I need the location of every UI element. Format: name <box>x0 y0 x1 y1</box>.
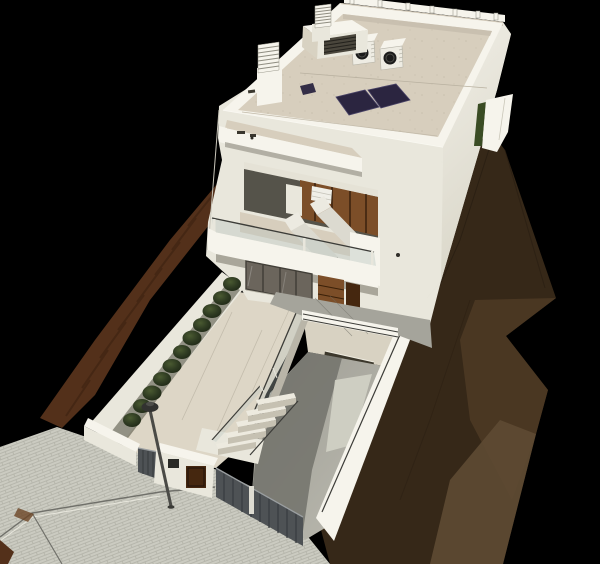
letterbox-panel <box>186 466 206 488</box>
wall-light-fixture <box>396 253 400 257</box>
architectural-rendering: Aerial 3D architectural rendering of a m… <box>0 0 600 564</box>
canopy-light-fixture <box>251 137 254 140</box>
render-canvas: Aerial 3D architectural rendering of a m… <box>0 0 600 564</box>
gate-post <box>249 486 254 514</box>
intercom-keypad <box>168 459 179 468</box>
roof-bulkhead <box>302 20 368 59</box>
